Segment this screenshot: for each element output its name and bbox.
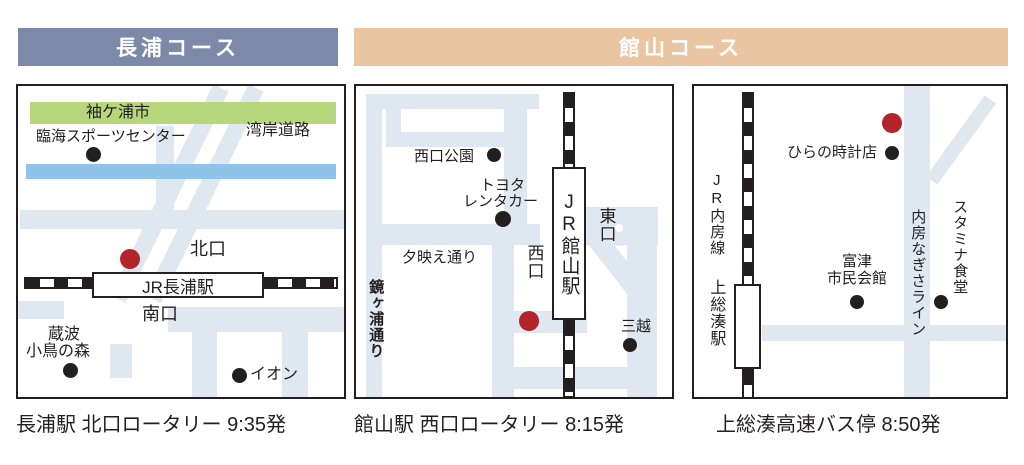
aeon-dot (232, 368, 247, 383)
map-tateyama-station: JR館山駅 西口公園 トヨタ レンタカー 夕映え通り 鏡ヶ浦通り 西口 東口 三… (354, 84, 674, 399)
stamina-shokudo-dot (934, 295, 948, 309)
futtsu-hall-label-line1: 富津 (842, 253, 872, 270)
road (168, 307, 344, 332)
yubae-street-label: 夕映え通り (402, 249, 477, 266)
futtsu-hall-dot (850, 295, 864, 309)
tateyama-course-title: 館山コース (619, 32, 743, 62)
road (20, 210, 344, 229)
railway-line (563, 320, 575, 398)
tateyama-station-name: JR館山駅 (556, 192, 583, 296)
jr-uchibo-line-label: JR内房線 (708, 172, 725, 256)
south-exit-label: 南口 (142, 304, 178, 325)
kazusaminato-station-box (734, 284, 761, 369)
tateyama-departure-caption: 館山駅 西口ロータリー 8:15発 (354, 408, 624, 437)
yubae-street-road (380, 224, 540, 245)
nagaura-station-box: JR長浦駅 (92, 272, 264, 298)
blue-road-band (26, 164, 336, 179)
mitsukoshi-label: 三越 (621, 318, 651, 335)
rinkai-sports-center-label: 臨海スポーツセンター (36, 128, 186, 145)
road (110, 344, 132, 378)
nishiguchi-park-dot (487, 148, 501, 162)
meeting-point-marker (882, 113, 902, 133)
meeting-point-marker (519, 311, 539, 331)
kuranami-forest-label-line1: 蔵波 (48, 326, 80, 344)
mitsukoshi-dot (623, 338, 637, 352)
roundabout-center (615, 224, 623, 232)
railway-line (563, 92, 575, 171)
toyota-rentacar-label-line1: トヨタ (480, 177, 525, 194)
tateyama-course-header: 館山コース (354, 28, 1008, 66)
hirano-clock-shop-dot (885, 146, 899, 160)
hirano-clock-shop-label: ひらの時計店 (787, 144, 877, 161)
rinkai-sports-center-dot (86, 147, 101, 162)
map-kazusaminato: JR内房線 上総湊駅 ひらの時計店 内房なぎさライン スタミナ食堂 富津 市民会… (692, 84, 1008, 399)
nagaura-course-header: 長浦コース (18, 28, 338, 66)
sodegaura-city-label: 袖ケ浦市 (86, 104, 150, 122)
road (192, 332, 217, 399)
railway-line (742, 369, 754, 399)
wangan-road-band (30, 102, 336, 124)
stamina-shokudo-label: スタミナ食堂 (951, 199, 968, 295)
kazusaminato-departure-caption: 上総湊高速バス停 8:50発 (716, 408, 940, 437)
kuranami-forest-dot (63, 363, 78, 378)
uchibo-nagisa-line-label: 内房なぎさライン (909, 209, 926, 337)
nagaura-course-title: 長浦コース (116, 32, 240, 62)
road (762, 325, 1008, 341)
nagaura-departure-caption: 長浦駅 北口ロータリー 9:35発 (16, 408, 286, 437)
meeting-point-marker (120, 249, 140, 269)
tateyama-station-box: JR館山駅 (552, 167, 586, 320)
futtsu-hall-label-line2: 市民会館 (827, 270, 887, 287)
railway-line (24, 277, 98, 289)
toyota-rentacar-dot (495, 211, 511, 227)
aeon-label: イオン (250, 366, 298, 384)
kagamigaura-street-label: 鏡ヶ浦通り (367, 279, 384, 359)
wangan-road-label: 湾岸道路 (246, 122, 310, 140)
toyota-rentacar-label-line2: レンタカー (463, 193, 538, 210)
kazusaminato-station-name: 上総湊駅 (706, 279, 724, 347)
west-exit-label: 西口 (524, 244, 544, 280)
road (18, 301, 64, 319)
railway-line (742, 92, 754, 288)
railway-line (262, 277, 338, 289)
kuranami-forest-label-line2: 小鳥の森 (26, 343, 90, 361)
nishiguchi-park-label: 西口公園 (414, 148, 474, 165)
east-exit-label: 東口 (596, 207, 616, 243)
nagaura-station-name: JR長浦駅 (142, 273, 214, 298)
north-exit-label: 北口 (190, 239, 226, 260)
road-diagonal (926, 95, 996, 184)
map-nagaura: 袖ケ浦市 臨海スポーツセンター 湾岸道路 北口 JR長浦駅 南口 蔵波 小鳥の森… (16, 84, 346, 399)
